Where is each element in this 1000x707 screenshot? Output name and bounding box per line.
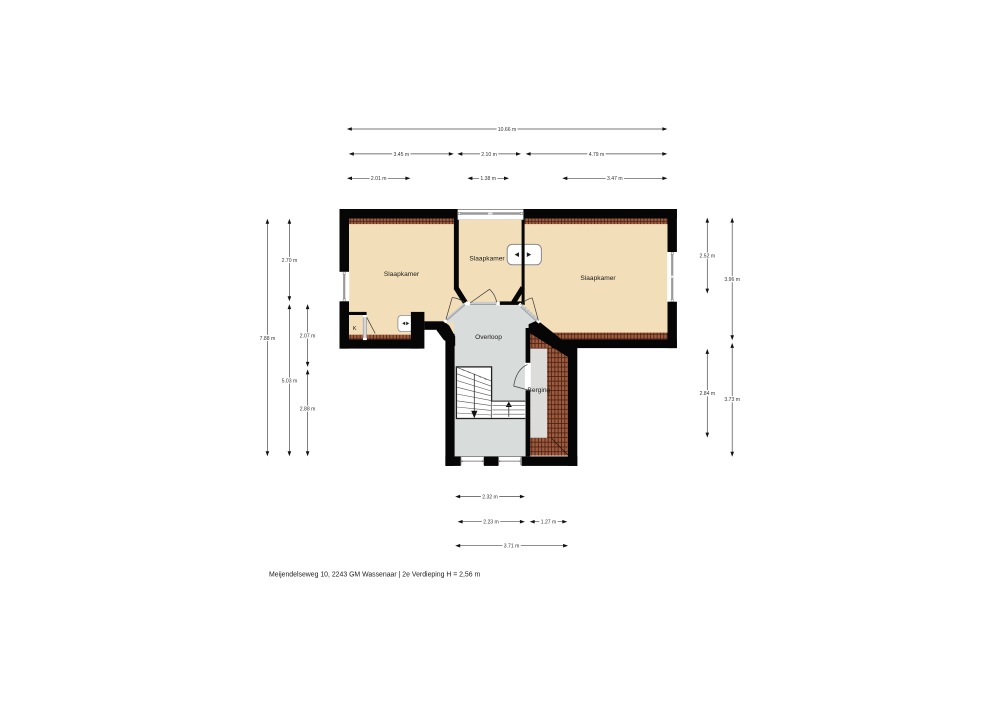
svg-text:K: K bbox=[353, 326, 357, 332]
svg-text:2.88 m: 2.88 m bbox=[300, 407, 316, 413]
svg-text:2.84 m: 2.84 m bbox=[700, 391, 716, 397]
svg-text:2.32 m: 2.32 m bbox=[482, 495, 498, 501]
svg-text:2.52 m: 2.52 m bbox=[700, 254, 716, 260]
svg-text:2.10 m: 2.10 m bbox=[481, 152, 497, 158]
svg-text:Overloop: Overloop bbox=[475, 334, 502, 341]
svg-text:Slaapkamer: Slaapkamer bbox=[469, 256, 505, 263]
svg-text:3.47 m: 3.47 m bbox=[607, 176, 623, 182]
svg-text:3.73 m: 3.73 m bbox=[724, 397, 740, 403]
svg-text:10.66 m: 10.66 m bbox=[498, 127, 516, 133]
svg-text:7.88 m: 7.88 m bbox=[260, 336, 276, 342]
svg-text:Slaapkamer: Slaapkamer bbox=[580, 275, 616, 282]
svg-text:Slaapkamer: Slaapkamer bbox=[384, 271, 420, 278]
svg-text:3.96 m: 3.96 m bbox=[724, 277, 740, 283]
svg-text:2.23 m: 2.23 m bbox=[483, 520, 499, 526]
svg-text:3.45 m: 3.45 m bbox=[394, 152, 410, 158]
svg-text:1.38 m: 1.38 m bbox=[480, 176, 496, 182]
svg-text:4.79 m: 4.79 m bbox=[589, 152, 605, 158]
svg-text:1.27 m: 1.27 m bbox=[541, 520, 557, 526]
svg-text:3.71 m: 3.71 m bbox=[504, 544, 520, 550]
svg-text:5.03 m: 5.03 m bbox=[282, 379, 298, 385]
svg-text:2.01 m: 2.01 m bbox=[371, 176, 387, 182]
svg-text:Berging: Berging bbox=[527, 387, 550, 394]
svg-text:2.07 m: 2.07 m bbox=[300, 333, 316, 339]
svg-text:2.70 m: 2.70 m bbox=[282, 258, 298, 264]
svg-text:Meijendelseweg 10, 2243 GM Was: Meijendelseweg 10, 2243 GM Wassenaar | 2… bbox=[269, 572, 481, 579]
